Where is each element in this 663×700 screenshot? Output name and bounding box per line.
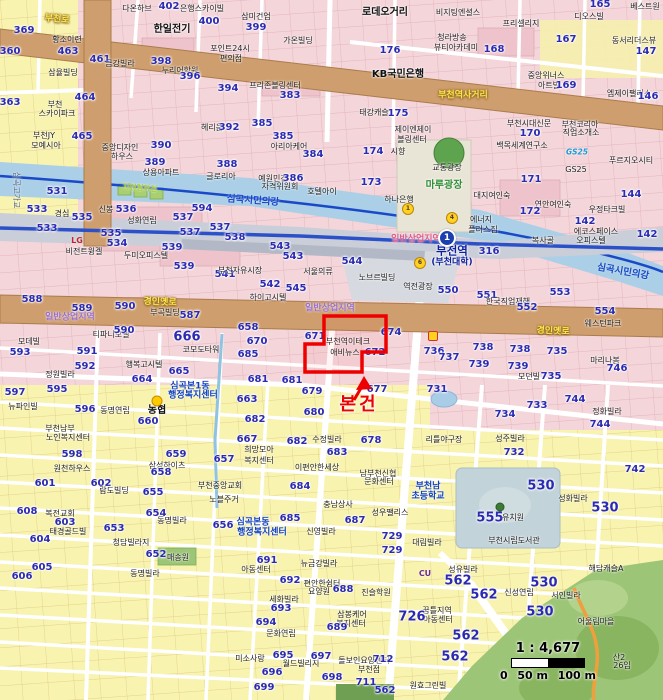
scale-ratio: 1 : 4,677 [498,641,598,656]
scale-tick-50: 50 m [517,669,548,682]
scale-widget: 1 : 4,677 0 50 m 100 m [498,641,598,682]
map-canvas [0,0,663,700]
road-overpass [84,0,111,246]
small-park [336,684,394,700]
scale-tick-100: 100 m [558,669,596,682]
map-viewport[interactable]: 다온하브402은행스카이빌400한일전기삼미건업399로데오거리비지팅엔셜스프리… [0,0,663,700]
pond [431,391,457,407]
scale-bar [511,658,585,668]
scale-ticks: 0 50 m 100 m [500,669,596,682]
scale-tick-0: 0 [500,669,508,682]
plaza-tree-icon [434,138,464,168]
